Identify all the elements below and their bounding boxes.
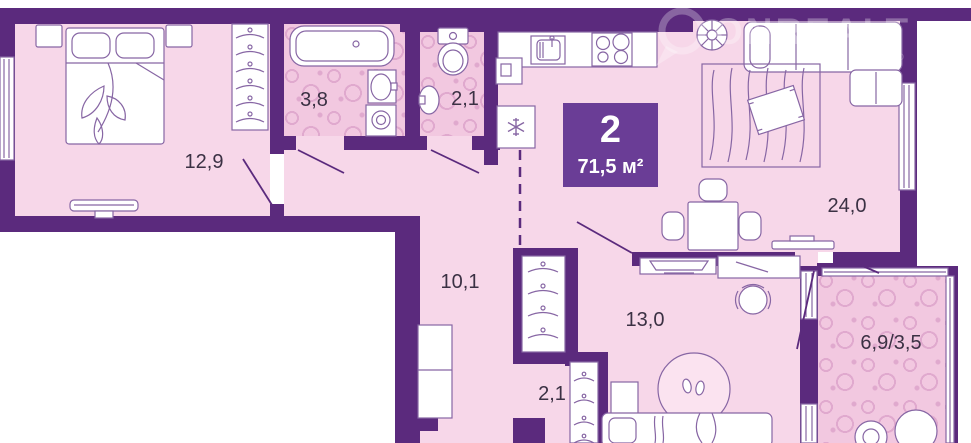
stove xyxy=(592,33,632,66)
nightstand xyxy=(36,25,62,47)
tv-console xyxy=(772,236,834,249)
hall-cabinet xyxy=(418,325,452,418)
desk xyxy=(718,256,800,278)
room-label-hallway: 10,1 xyxy=(430,271,490,294)
washing-machine xyxy=(366,105,396,136)
badge-room-count: 2 xyxy=(600,111,621,149)
room-label-wc: 2,1 xyxy=(440,88,490,111)
window xyxy=(0,57,14,160)
room-label-room13: 13,0 xyxy=(615,309,675,332)
room-label-corridor: 2,1 xyxy=(527,383,577,406)
apartment-badge: 2 71,5 м² xyxy=(563,103,658,187)
bed xyxy=(602,413,772,443)
wc-sink xyxy=(419,86,439,114)
room-label-bedroom: 12,9 xyxy=(174,151,234,174)
room-label-balcony: 6,9/3,5 xyxy=(851,332,931,355)
fridge xyxy=(497,106,535,148)
bed xyxy=(66,28,164,144)
room-label-bathroom: 3,8 xyxy=(289,89,339,112)
furniture-overlay xyxy=(0,0,971,443)
balcony-table xyxy=(895,410,937,443)
badge-area: 71,5 м² xyxy=(578,156,644,179)
sink xyxy=(368,70,397,103)
coffee-table xyxy=(748,85,805,134)
hall-wardrobe-hangers xyxy=(522,256,565,352)
bathtub xyxy=(290,26,394,66)
wardrobe-hangers xyxy=(232,24,268,130)
tv-stand xyxy=(640,258,716,274)
room-label-living: 24,0 xyxy=(817,195,877,218)
nightstand xyxy=(166,25,192,47)
radiator xyxy=(70,200,138,218)
nightstand xyxy=(611,382,638,414)
balcony-chair xyxy=(855,421,887,443)
office-chair xyxy=(736,285,771,315)
plant xyxy=(697,20,727,50)
kitchen-sink xyxy=(531,36,565,64)
toilet xyxy=(438,28,468,75)
kitchen-cabinet xyxy=(496,58,522,84)
dining-table xyxy=(662,179,761,250)
floor-plan: 12,9 3,8 2,1 10,1 24,0 13,0 2,1 6,9/3,5 … xyxy=(0,0,971,443)
